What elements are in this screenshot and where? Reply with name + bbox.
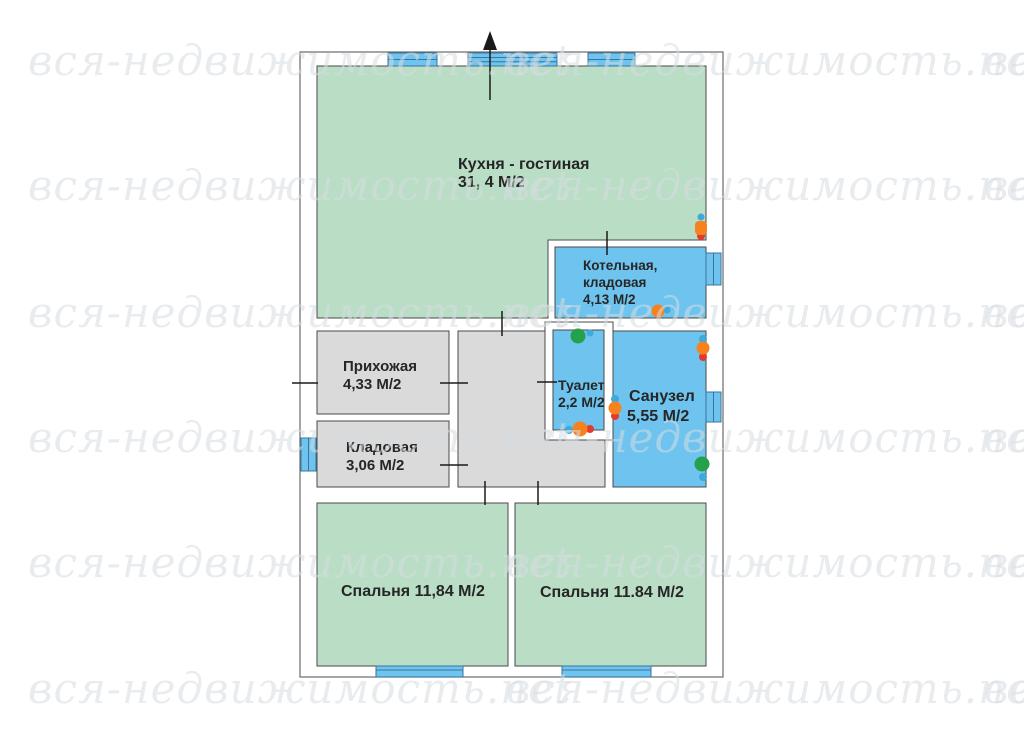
window-right-bathroom: [706, 392, 721, 422]
window-left: [301, 438, 316, 471]
window-bottom-left: [376, 666, 463, 677]
window-bottom-right: [562, 666, 651, 677]
boiler-label-line1: Котельная,: [583, 258, 657, 273]
bathroom-label: Санузел: [629, 388, 695, 405]
floor-plan: Кухня - гостиная 31, 4 М/2 Котельная, кл…: [0, 0, 1024, 733]
hallway-area: 4,33 М/2: [343, 376, 401, 393]
window-top-2: [468, 53, 557, 66]
toilet-label: Туалет: [558, 377, 605, 393]
bedroom-right-label: Спальня 11.84 М/2: [540, 584, 684, 601]
window-right-boiler: [706, 253, 721, 285]
window-top-1: [388, 53, 437, 66]
bathroom-area: 5,55 М/2: [627, 408, 689, 425]
boiler-label-line2: кладовая: [583, 275, 646, 290]
storage-label: Кладовая: [346, 439, 418, 456]
storage-area: 3,06 М/2: [346, 457, 404, 474]
hallway-label: Прихожая: [343, 358, 417, 375]
window-top-3: [588, 53, 635, 66]
kitchen-area: 31, 4 М/2: [458, 174, 525, 191]
kitchen-label: Кухня - гостиная: [458, 156, 589, 173]
boiler-area: 4,13 М/2: [583, 292, 636, 307]
toilet-area: 2,2 М/2: [558, 394, 605, 410]
bedroom-left-label: Спальня 11,84 М/2: [341, 583, 485, 600]
